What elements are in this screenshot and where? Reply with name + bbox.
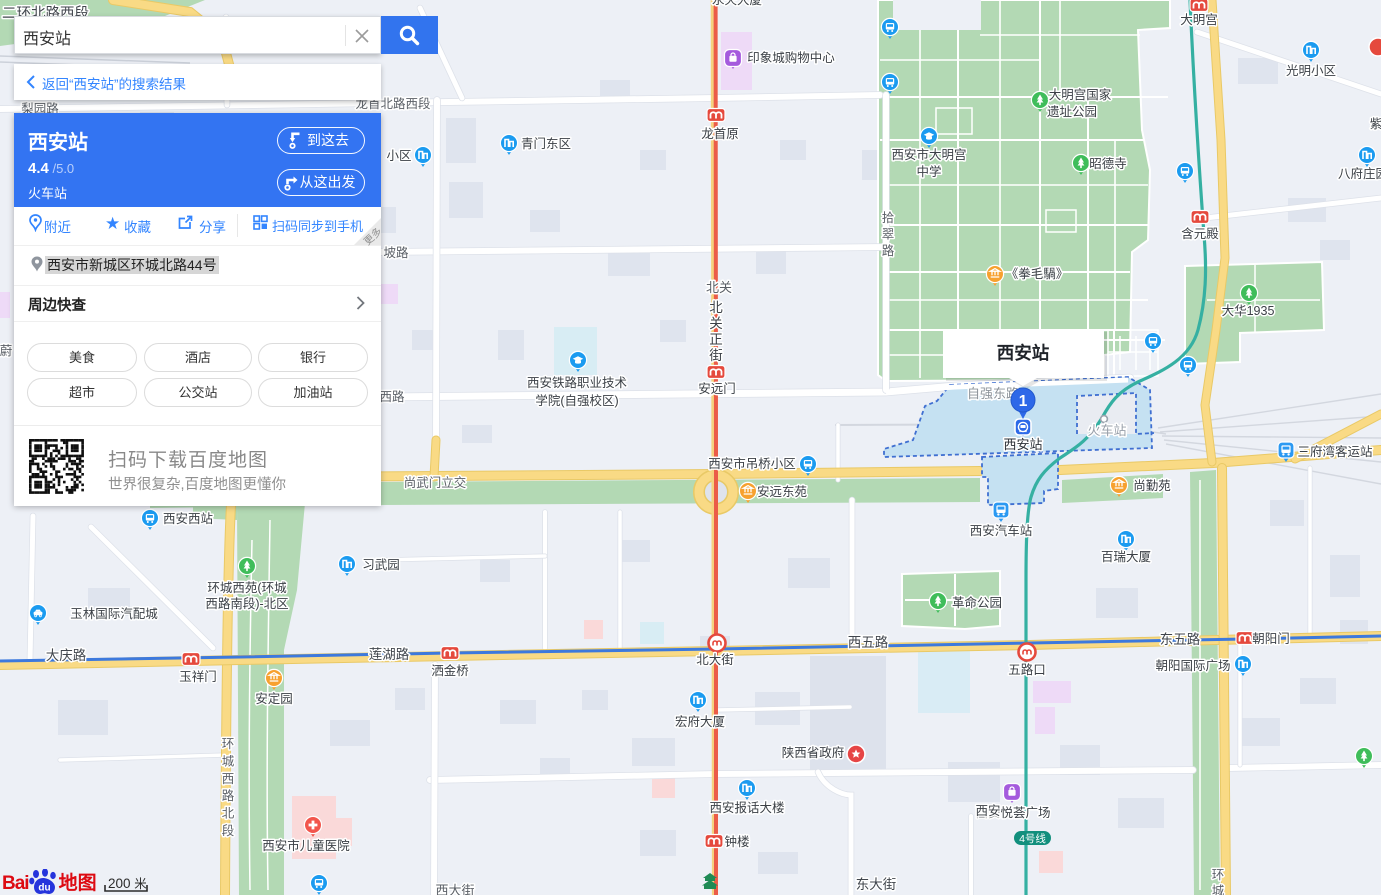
svg-text:西路: 西路 (379, 389, 405, 404)
svg-text:玉林国际汽配城: 玉林国际汽配城 (70, 606, 158, 621)
svg-text:学院(自强校区): 学院(自强校区) (535, 393, 618, 408)
svg-text:光明小区: 光明小区 (1286, 64, 1336, 78)
svg-text:西五路: 西五路 (848, 635, 889, 650)
svg-text:西大街: 西大街 (435, 883, 474, 895)
svg-text:尚武门立交: 尚武门立交 (404, 475, 467, 490)
svg-text:坡路: 坡路 (383, 245, 409, 260)
svg-text:拾翠路: 拾翠路 (882, 210, 895, 258)
svg-text:西安市儿童医院: 西安市儿童医院 (262, 838, 350, 853)
svg-text:龙首原: 龙首原 (701, 127, 739, 141)
svg-text:安远门: 安远门 (698, 381, 736, 396)
svg-text:北关: 北关 (706, 280, 732, 295)
svg-text:东五路: 东五路 (1160, 632, 1201, 647)
svg-text:大明宫: 大明宫 (1180, 12, 1218, 27)
svg-text:青门东区: 青门东区 (521, 136, 571, 151)
svg-text:环城西苑(环城: 环城西苑(环城 (207, 581, 287, 595)
svg-text:东大街: 东大街 (856, 877, 897, 892)
svg-text:大庆路: 大庆路 (46, 648, 87, 663)
svg-text:印象城购物中心: 印象城购物中心 (747, 50, 835, 65)
svg-text:钟楼: 钟楼 (724, 834, 749, 849)
svg-text:西安市吊桥小区: 西安市吊桥小区 (708, 456, 796, 471)
svg-text:西安: 西安 (975, 803, 1000, 818)
svg-text:4号线: 4号线 (1019, 832, 1046, 845)
svg-text:西安汽车站: 西安汽车站 (970, 523, 1033, 538)
svg-text:1: 1 (1019, 393, 1028, 410)
svg-text:安定园: 安定园 (255, 691, 293, 706)
svg-text:环城东路: 环城东路 (1212, 868, 1225, 895)
svg-text:革命公园: 革命公园 (952, 595, 1002, 610)
svg-text:西安市大明宫: 西安市大明宫 (891, 147, 966, 162)
svg-text:北大街: 北大街 (696, 653, 734, 667)
svg-text:宏府大厦: 宏府大厦 (675, 714, 725, 729)
svg-text:大明宫国家: 大明宫国家 (1049, 87, 1112, 102)
svg-text:朝阳国际广场: 朝阳国际广场 (1155, 659, 1230, 673)
svg-text:永天大厦: 永天大厦 (712, 0, 762, 7)
svg-text:尚勤苑: 尚勤苑 (1133, 479, 1171, 493)
svg-text:莲湖路: 莲湖路 (369, 647, 410, 662)
svg-text:安远东苑: 安远东苑 (757, 484, 808, 499)
svg-text:小区: 小区 (386, 149, 411, 163)
svg-text:蔚: 蔚 (0, 344, 12, 358)
svg-text:西安报话大楼: 西安报话大楼 (709, 800, 784, 815)
svg-text:中学: 中学 (916, 164, 941, 179)
svg-text:西安站: 西安站 (1003, 437, 1042, 452)
svg-text:火车站: 火车站 (1087, 423, 1126, 438)
svg-text:习武园: 习武园 (362, 558, 400, 572)
svg-text:du: du (38, 883, 50, 894)
svg-text:遗址公园: 遗址公园 (1047, 105, 1097, 119)
svg-text:紫: 紫 (1370, 117, 1381, 131)
svg-text:《拳毛騧》: 《拳毛騧》 (1006, 266, 1069, 281)
svg-text:西路南段)-北区: 西路南段)-北区 (205, 596, 288, 611)
svg-text:陕西省政府: 陕西省政府 (782, 745, 845, 760)
svg-text:西安站: 西安站 (997, 343, 1050, 363)
svg-text:玉祥门: 玉祥门 (179, 669, 217, 684)
svg-text:五路口: 五路口 (1008, 662, 1046, 677)
svg-text:洒金桥: 洒金桥 (431, 663, 469, 678)
svg-text:昭德寺: 昭德寺 (1089, 156, 1127, 171)
svg-text:含元殿: 含元殿 (1181, 226, 1219, 241)
svg-text:北关正街: 北关正街 (709, 300, 723, 363)
svg-text:大华1935: 大华1935 (1222, 303, 1275, 318)
svg-text:百瑞大厦: 百瑞大厦 (1101, 550, 1151, 564)
svg-text:西安铁路职业技术: 西安铁路职业技术 (527, 375, 628, 390)
svg-text:三府湾客运站: 三府湾客运站 (1297, 444, 1372, 459)
svg-text:西安西站: 西安西站 (163, 511, 213, 526)
svg-text:朝阳门: 朝阳门 (1252, 631, 1290, 646)
svg-text:八府庄园: 八府庄园 (1338, 166, 1381, 181)
